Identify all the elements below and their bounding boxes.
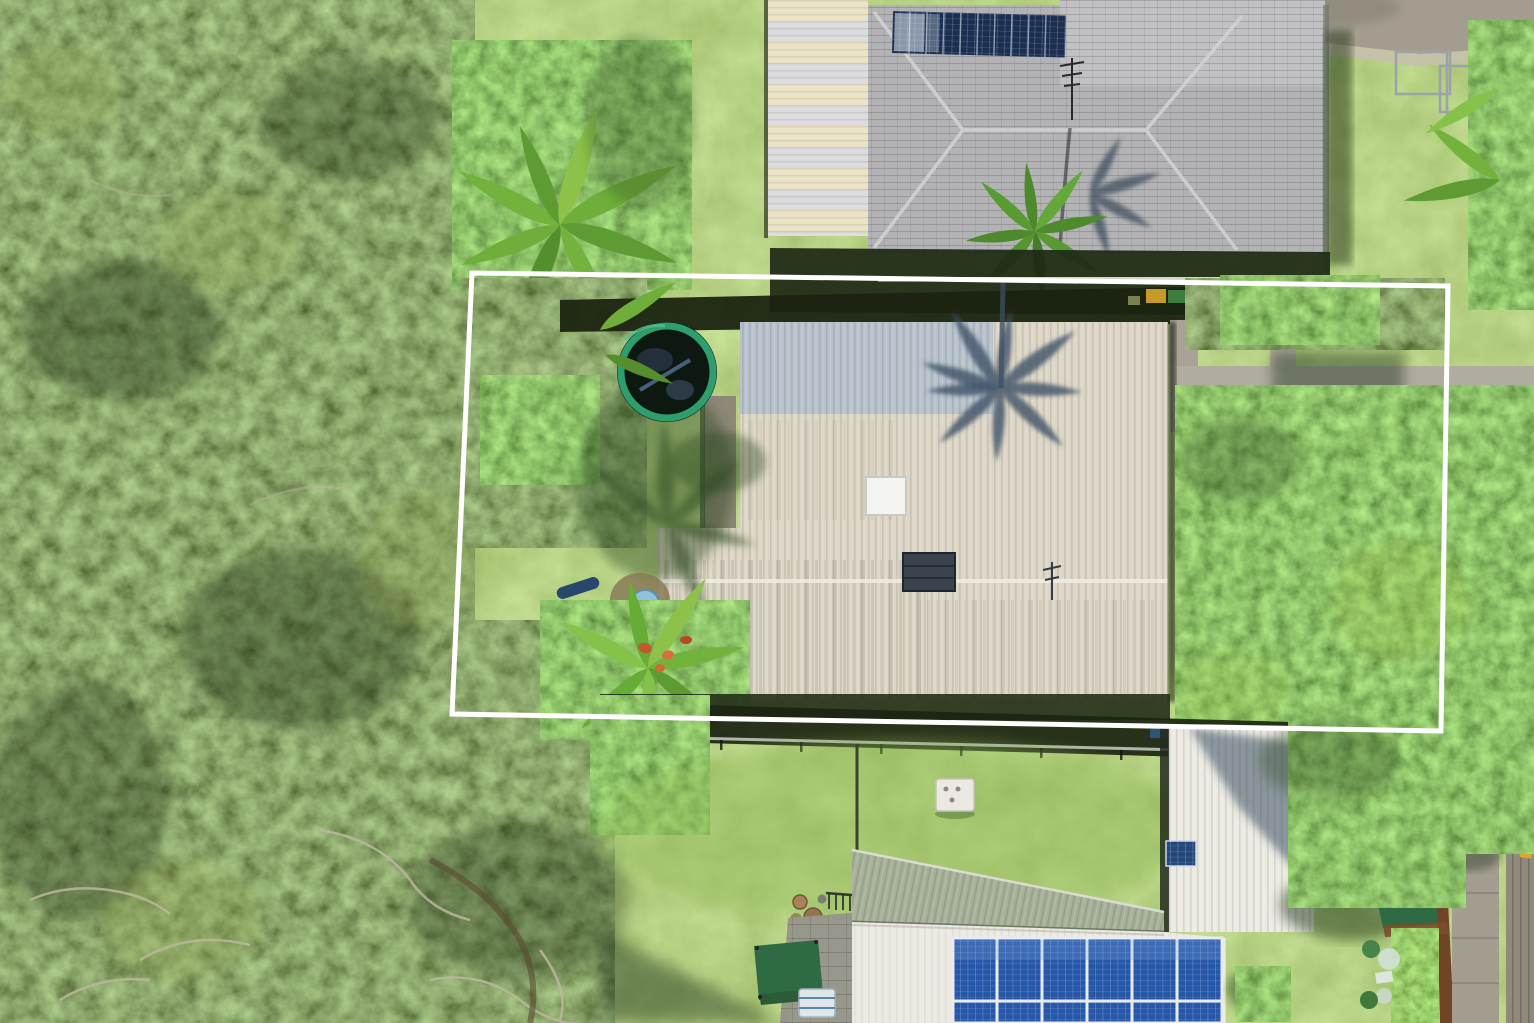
hedge-row: [1391, 928, 1439, 1023]
solar-row-glint: [894, 13, 925, 52]
striped-roof-corrugation: [768, 0, 868, 236]
crate-green: [1168, 290, 1185, 303]
white-item: [1375, 971, 1393, 984]
small-solar-cells: [1166, 841, 1196, 866]
striped-esky: [799, 989, 835, 1017]
skylight: [866, 477, 906, 515]
aerial-photo: [0, 0, 1534, 1023]
tree-shadow-top-lawn: [585, 35, 695, 205]
wing-west-gap-shadow: [1160, 728, 1169, 932]
trampoline-shadow: [670, 432, 766, 492]
roof-streaks-lower: [920, 600, 1168, 700]
roof-vent: [903, 553, 955, 591]
green-bin1: [1362, 940, 1380, 958]
canopy-highlight2: [1170, 650, 1290, 730]
house-east-shadow: [1325, 30, 1352, 265]
yellow-marker: [1520, 849, 1533, 859]
solar-row-top: [892, 11, 1066, 58]
solar-array-glint: [955, 940, 1220, 960]
crate-yellow: [1146, 289, 1166, 303]
fence-line-left-of-roof: [764, 0, 768, 238]
roof-east-eave-shadow: [1168, 322, 1176, 702]
aerial-photo-canvas: [0, 0, 1534, 1023]
green-bin2: [1360, 991, 1378, 1009]
canopy-highlight1: [1330, 540, 1470, 660]
canopy-shade1: [1180, 415, 1300, 505]
timber-fence-boards: [1506, 852, 1534, 1023]
property-interior: [462, 275, 1534, 766]
pale-item: [1376, 988, 1392, 1004]
canopy-bottom-right-edge: [1452, 698, 1534, 854]
crate-small: [1128, 296, 1140, 305]
round-tree: [1235, 966, 1291, 1022]
solar-row-glint2: [926, 14, 940, 52]
outdoor-table: [935, 779, 975, 819]
round-outdoor-table: [1378, 948, 1400, 970]
solar-array-bottom: [953, 938, 1222, 1023]
